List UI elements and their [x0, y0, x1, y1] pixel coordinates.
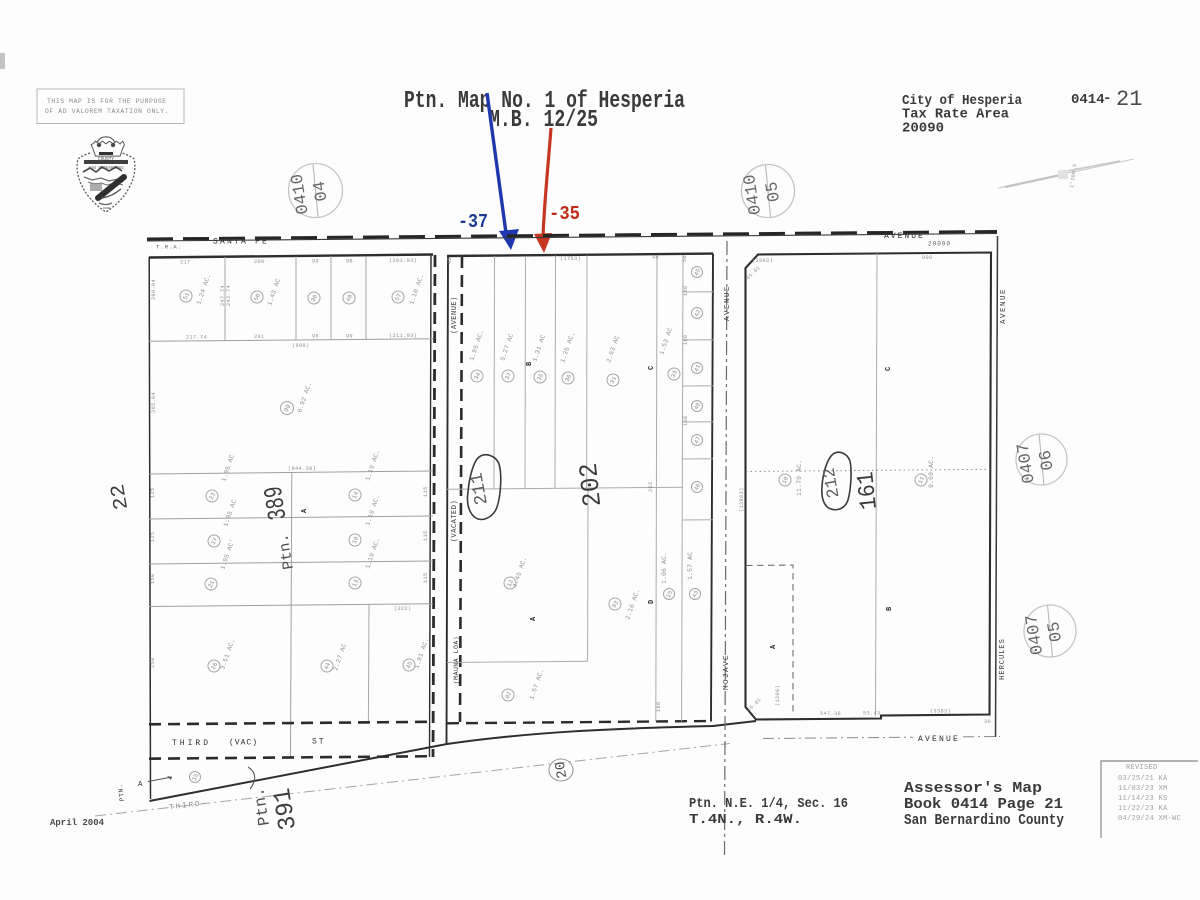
- svg-text:20090: 20090: [928, 241, 951, 248]
- svg-text:900: 900: [922, 255, 933, 261]
- svg-text:T.R.A.: T.R.A.: [156, 244, 182, 251]
- svg-text:115: 115: [423, 530, 429, 541]
- svg-text:Assessor's Map: Assessor's Map: [904, 780, 1042, 797]
- svg-text:(1753): (1753): [560, 256, 581, 262]
- svg-text:98: 98: [312, 334, 319, 340]
- svg-text:200: 200: [254, 259, 265, 265]
- svg-text:D: D: [648, 600, 656, 604]
- svg-text:(211.93): (211.93): [389, 333, 417, 339]
- svg-text:45: 45: [652, 255, 659, 261]
- svg-text:11.79 AC.: 11.79 AC.: [796, 460, 803, 496]
- svg-text:(MAUNA LOA): (MAUNA LOA): [453, 636, 460, 684]
- svg-text:(3903): (3903): [752, 258, 773, 264]
- svg-text:209.04: 209.04: [151, 279, 157, 300]
- svg-text:(201.93): (201.93): [389, 258, 417, 264]
- svg-text:05: 05: [763, 180, 785, 203]
- svg-text:100: 100: [656, 701, 662, 712]
- svg-text:(999): (999): [292, 343, 310, 349]
- svg-text:Ptn. N.E. 1/4, Sec. 16: Ptn. N.E. 1/4, Sec. 16: [689, 796, 848, 812]
- svg-text:REVISED: REVISED: [1126, 764, 1158, 772]
- svg-text:(AVENUE): (AVENUE): [451, 296, 459, 334]
- svg-text:21: 21: [1116, 87, 1142, 112]
- svg-text:125: 125: [150, 487, 156, 498]
- svg-text:A: A: [138, 781, 143, 789]
- svg-text:(1200): (1200): [775, 685, 781, 706]
- svg-text:125: 125: [150, 531, 156, 542]
- svg-text:150: 150: [150, 573, 156, 584]
- svg-text:Book 0414 Page 21: Book 0414 Page 21: [904, 796, 1063, 813]
- svg-text:161: 161: [853, 470, 884, 511]
- svg-text:San Bernardino County: San Bernardino County: [904, 812, 1064, 829]
- svg-text:OF AD VALOREM TAXATION ONLY.: OF AD VALOREM TAXATION ONLY.: [45, 108, 169, 115]
- svg-text:100: 100: [683, 285, 689, 296]
- svg-text:202: 202: [648, 481, 654, 492]
- svg-text:(13903): (13903): [739, 487, 745, 512]
- svg-text:1.57 AC: 1.57 AC: [687, 552, 694, 580]
- svg-text:AVENUE: AVENUE: [1000, 288, 1008, 324]
- svg-text:MOJAVE: MOJAVE: [723, 654, 731, 690]
- svg-text:C: C: [648, 366, 656, 370]
- svg-text:50: 50: [682, 255, 688, 262]
- svg-text:T.4N., R.4W.: T.4N., R.4W.: [689, 812, 802, 828]
- svg-text:04: 04: [311, 179, 333, 202]
- svg-text:(322): (322): [394, 606, 412, 612]
- svg-text:389: 389: [259, 484, 294, 522]
- svg-text:-35: -35: [549, 203, 580, 225]
- svg-text:99: 99: [312, 259, 319, 265]
- svg-text:9.69 AC.: 9.69 AC.: [928, 456, 935, 488]
- svg-text:1.06 AC.: 1.06 AC.: [661, 552, 668, 584]
- svg-text:AVENUE: AVENUE: [724, 285, 732, 321]
- svg-text:(944.38): (944.38): [288, 466, 316, 472]
- svg-text:20090: 20090: [902, 121, 944, 137]
- svg-text:100: 100: [683, 334, 689, 345]
- svg-text:0414: 0414: [1071, 92, 1105, 108]
- svg-text:THIS MAP IS FOR THE PURPOSE: THIS MAP IS FOR THE PURPOSE: [47, 98, 167, 105]
- svg-text:11/22/23 KA: 11/22/23 KA: [1118, 805, 1168, 813]
- svg-text:11/14/23 KS: 11/14/23 KS: [1118, 795, 1168, 803]
- svg-text:M.B. 12/25: M.B. 12/25: [489, 107, 598, 134]
- svg-text:98: 98: [346, 259, 353, 265]
- svg-text:30: 30: [984, 719, 991, 725]
- svg-text:C: C: [885, 367, 893, 371]
- svg-text:April 2004: April 2004: [50, 818, 105, 828]
- svg-text:547.38: 547.38: [820, 711, 841, 717]
- svg-text:365.04: 365.04: [151, 392, 157, 413]
- svg-text:-37: -37: [458, 211, 488, 233]
- svg-text:HERCULES: HERCULES: [999, 638, 1007, 680]
- svg-text:99: 99: [346, 334, 353, 340]
- svg-text:217: 217: [180, 260, 191, 266]
- svg-text:242.74: 242.74: [226, 285, 232, 306]
- svg-text:115: 115: [423, 486, 429, 497]
- svg-text:04/29/24 XM-WC: 04/29/24 XM-WC: [1118, 815, 1181, 823]
- svg-text:AVENUE: AVENUE: [884, 232, 925, 241]
- svg-text:201: 201: [254, 334, 265, 340]
- svg-text:100: 100: [683, 415, 689, 426]
- svg-text:(VACATED): (VACATED): [451, 500, 459, 542]
- svg-text:03/25/21 KA: 03/25/21 KA: [1118, 775, 1168, 783]
- svg-text:(3383): (3383): [930, 709, 951, 715]
- svg-text:SANTA FE: SANTA FE: [213, 238, 269, 247]
- svg-text:217.74: 217.74: [186, 335, 207, 341]
- svg-text:11/03/23 XM: 11/03/23 XM: [1118, 785, 1168, 793]
- svg-text:202: 202: [574, 461, 608, 508]
- svg-text:20: 20: [553, 760, 572, 779]
- svg-text:05: 05: [1045, 620, 1067, 643]
- svg-text:THIRD: THIRD: [172, 739, 211, 748]
- svg-text:53.43: 53.43: [863, 711, 881, 717]
- svg-text:250: 250: [150, 657, 156, 668]
- svg-text:06: 06: [1037, 448, 1059, 471]
- svg-text:115: 115: [423, 572, 429, 583]
- svg-text:22: 22: [107, 482, 134, 512]
- svg-text:ST: ST: [312, 738, 326, 747]
- svg-text:(VAC): (VAC): [229, 739, 258, 748]
- svg-text:-: -: [1103, 91, 1111, 107]
- svg-text:AVENUE: AVENUE: [918, 735, 960, 744]
- svg-text:45: 45: [447, 257, 453, 264]
